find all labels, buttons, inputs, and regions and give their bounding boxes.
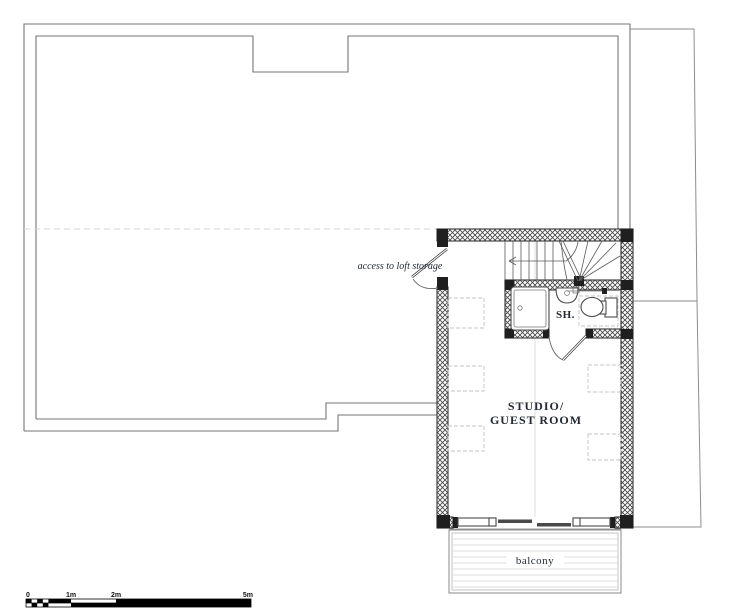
loft-access-label: access to loft storage bbox=[358, 261, 443, 272]
basin bbox=[556, 287, 579, 303]
floor-plan-canvas: 0 1m 2m 5m access to loft storage SH. ST… bbox=[0, 0, 730, 611]
studio-label-line1: STUDIO/ bbox=[508, 399, 564, 413]
balcony-label: balcony bbox=[516, 555, 554, 567]
scale-tick-1m: 1m bbox=[66, 592, 76, 599]
rail-bracket bbox=[602, 288, 607, 294]
studio-label-line2: GUEST ROOM bbox=[490, 413, 582, 427]
shower-room-door bbox=[549, 336, 586, 360]
floor-plan-drawing: 0 1m 2m 5m access to loft storage SH. ST… bbox=[0, 0, 730, 611]
shower-label: SH. bbox=[556, 309, 575, 321]
shower-tray bbox=[511, 287, 549, 330]
roof-outline bbox=[24, 24, 630, 431]
shower-room bbox=[511, 287, 618, 360]
toilet bbox=[579, 296, 618, 326]
stairs bbox=[505, 241, 620, 281]
balcony-sliding-doors bbox=[458, 518, 610, 527]
adjacent-roof-panels bbox=[630, 29, 701, 527]
scale-bar: 0 1m 2m 5m bbox=[26, 592, 253, 607]
scale-tick-5m: 5m bbox=[243, 592, 253, 599]
stair-direction-arrow bbox=[509, 242, 578, 265]
scale-tick-2m: 2m bbox=[111, 592, 121, 599]
scale-tick-0: 0 bbox=[26, 592, 30, 599]
